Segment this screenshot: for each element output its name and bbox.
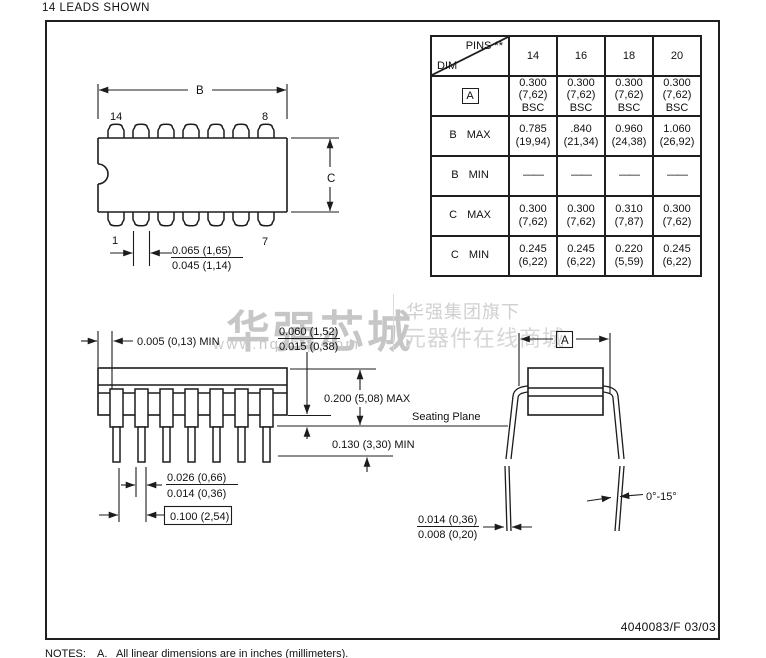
seating-plane-label: Seating Plane	[412, 411, 481, 423]
pin-7-label: 7	[262, 236, 268, 248]
dim-lead-below-seating: 0.130 (3,30) MIN	[278, 439, 415, 472]
package-drawing-svg: B C 14 8 1 7 0.065 (1,65) 0.045 (1,14)	[0, 0, 766, 658]
dim-tip-width: 0.014 (0,36) 0.008 (0,20)	[417, 514, 532, 541]
notes-label: NOTES:	[45, 648, 86, 658]
lead-width-min-text: 0.045 (1,14)	[172, 260, 231, 272]
standoff-max-text: 0.060 (1,52)	[279, 326, 338, 338]
tip-width-max-text: 0.014 (0,36)	[418, 514, 477, 526]
dim-body-height: 0.200 (5,08) MAX	[290, 369, 411, 425]
pin-1-label: 1	[112, 235, 118, 247]
end-body-outline	[528, 368, 603, 415]
side-view-lead-shoulders	[110, 389, 273, 427]
end-view-right-lead	[603, 386, 624, 531]
end-body-mold-lines	[528, 388, 603, 396]
pin-8-label: 8	[262, 111, 268, 123]
dim-b-label: B	[196, 85, 204, 97]
edge-gap-text: 0.005 (0,13) MIN	[137, 336, 220, 348]
side-view-lead-tips	[113, 427, 270, 462]
pin1-index-notch	[98, 164, 108, 184]
dim-edge-gap: 0.005 (0,13) MIN	[81, 331, 220, 389]
lead-thickness-max-text: 0.026 (0,66)	[167, 472, 226, 484]
lead-angle-text: 0°-15°	[646, 491, 677, 503]
note-a-index: A.	[97, 648, 107, 658]
lead-pitch-text: 0.100 (2,54)	[170, 511, 229, 523]
standoff-min-text: 0.015 (0,38)	[279, 341, 338, 353]
dim-lead-width: 0.065 (1,65) 0.045 (1,14)	[110, 231, 243, 272]
top-view-upper-pins	[108, 124, 274, 138]
dim-b: B	[98, 84, 287, 119]
dim-c-label: C	[327, 173, 335, 185]
package-end-view: A 0°-15° 0.014 (0,36) 0.008 (0,20)	[417, 332, 677, 542]
end-view-left-lead	[505, 386, 528, 531]
top-view-lower-pins	[108, 212, 274, 226]
lead-width-max-text: 0.065 (1,65)	[172, 245, 231, 257]
document-number: 4040083/F 03/03	[540, 620, 716, 634]
lead-thickness-min-text: 0.014 (0,36)	[167, 488, 226, 500]
dim-a: A	[519, 332, 610, 395]
datasheet-mechanical-drawing-page: 14 LEADS SHOWN 华强芯城 www.hqchip.com 华强集团旗…	[0, 0, 766, 658]
package-body-outline	[98, 138, 287, 212]
dim-a-label: A	[561, 335, 569, 347]
package-side-view: Seating Plane 0.005 (0,13) MIN 0.060 (1,…	[81, 326, 508, 525]
dim-lead-angle: 0°-15°	[587, 491, 677, 503]
note-a-text: All linear dimensions are in inches (mil…	[116, 648, 348, 658]
tip-width-min-text: 0.008 (0,20)	[418, 529, 477, 541]
body-height-text: 0.200 (5,08) MAX	[324, 393, 411, 405]
package-top-view: B C 14 8 1 7 0.065 (1,65) 0.045 (1,14)	[98, 84, 339, 272]
pin-14-label: 14	[110, 111, 122, 123]
dim-c: C	[291, 138, 339, 212]
lead-below-text: 0.130 (3,30) MIN	[332, 439, 415, 451]
